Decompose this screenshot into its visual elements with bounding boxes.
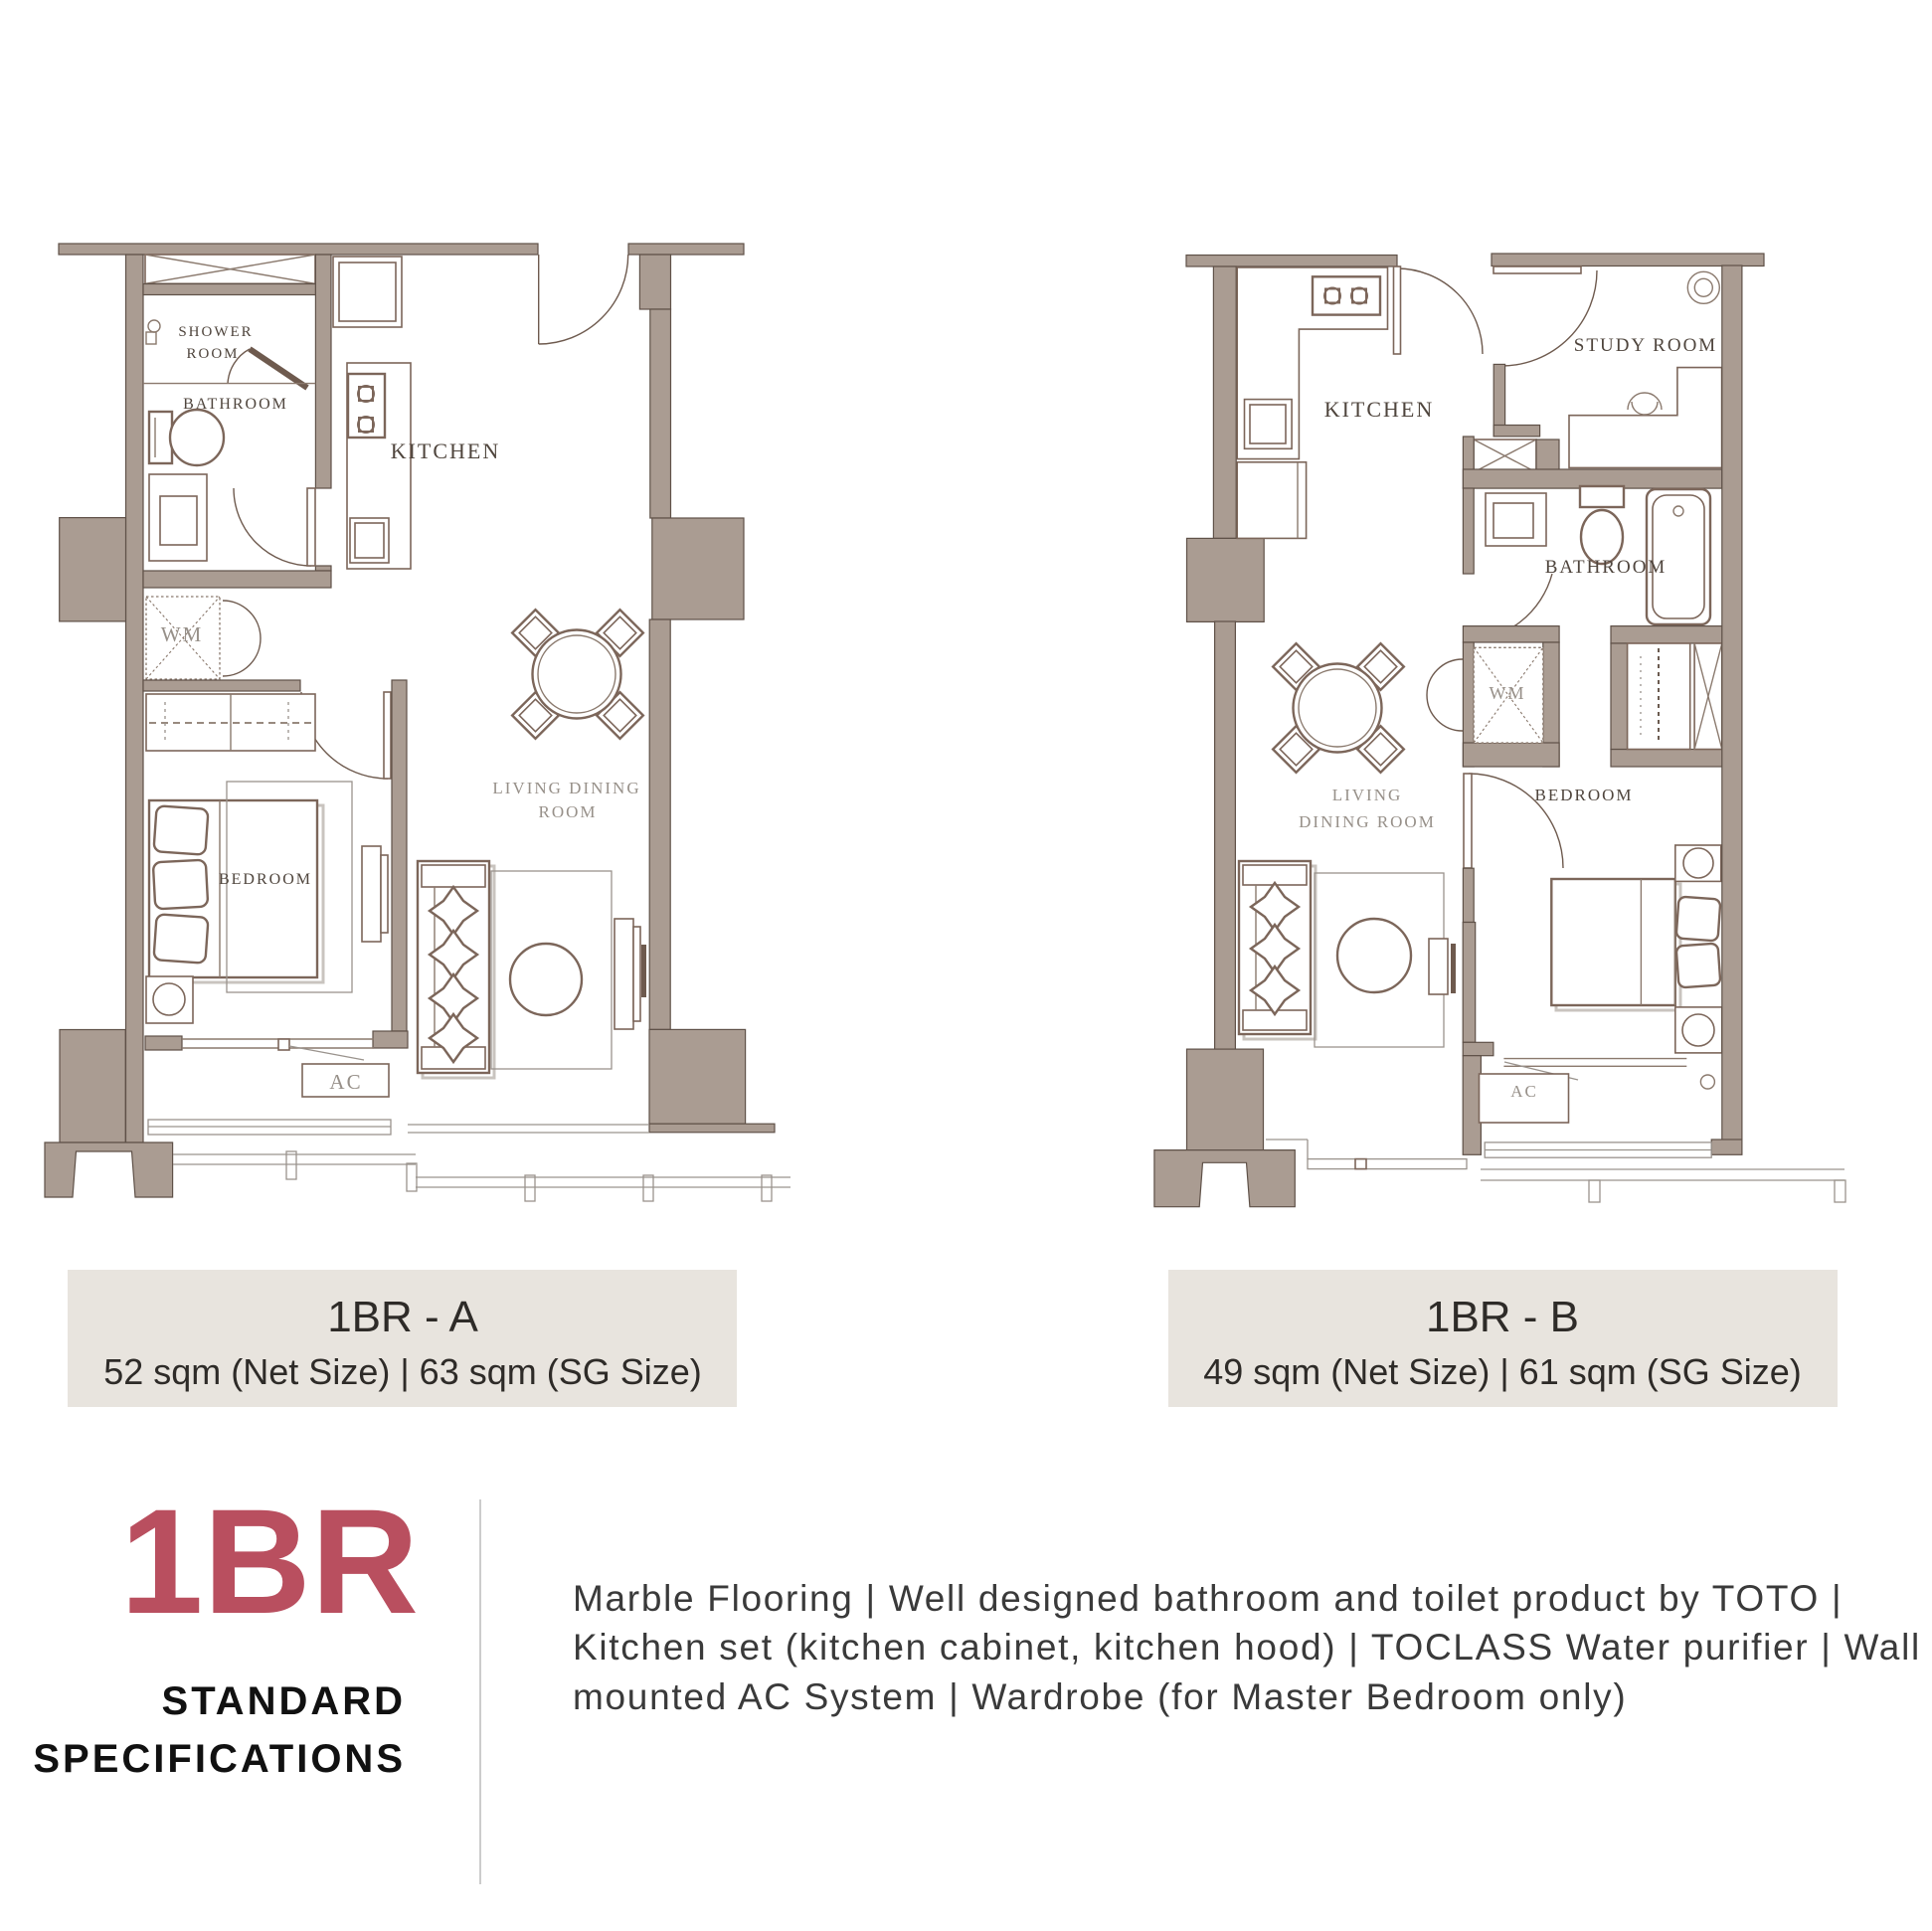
svg-text:BEDROOM: BEDROOM [219, 871, 312, 888]
svg-text:Kitchen set (kitchen cabinet,: Kitchen set (kitchen cabinet, kitchen ho… [573, 1627, 1921, 1668]
svg-text:ROOM: ROOM [538, 802, 597, 821]
svg-text:1BR - B: 1BR - B [1426, 1293, 1579, 1341]
svg-text:AC: AC [329, 1070, 362, 1094]
svg-text:LIVING DINING: LIVING DINING [492, 779, 640, 797]
svg-text:SHOWER: SHOWER [178, 324, 253, 340]
svg-text:LIVING: LIVING [1332, 786, 1403, 804]
svg-text:ROOM: ROOM [186, 346, 239, 362]
svg-text:BEDROOM: BEDROOM [1534, 786, 1633, 804]
svg-text:1BR: 1BR [120, 1478, 419, 1645]
svg-text:DINING ROOM: DINING ROOM [1299, 812, 1436, 831]
svg-text:mounted AC System | Wardrobe (: mounted AC System | Wardrobe (for Master… [573, 1676, 1627, 1717]
svg-text:52 sqm (Net Size) | 63 sqm (SG: 52 sqm (Net Size) | 63 sqm (SG Size) [103, 1351, 702, 1392]
svg-text:KITCHEN: KITCHEN [1324, 397, 1435, 422]
svg-text:KITCHEN: KITCHEN [391, 439, 501, 463]
svg-text:SPECIFICATIONS: SPECIFICATIONS [33, 1737, 406, 1781]
svg-text:WM: WM [1490, 683, 1526, 703]
svg-text:BATHROOM: BATHROOM [1545, 557, 1668, 578]
svg-text:STUDY ROOM: STUDY ROOM [1574, 335, 1717, 356]
svg-text:WM: WM [161, 622, 204, 646]
svg-text:AC: AC [1510, 1082, 1538, 1101]
svg-text:1BR - A: 1BR - A [327, 1293, 478, 1341]
svg-text:Marble Flooring | Well designe: Marble Flooring | Well designed bathroom… [573, 1578, 1843, 1619]
svg-text:STANDARD: STANDARD [162, 1679, 406, 1723]
svg-text:49 sqm (Net Size) | 61 sqm (SG: 49 sqm (Net Size) | 61 sqm (SG Size) [1203, 1351, 1802, 1392]
